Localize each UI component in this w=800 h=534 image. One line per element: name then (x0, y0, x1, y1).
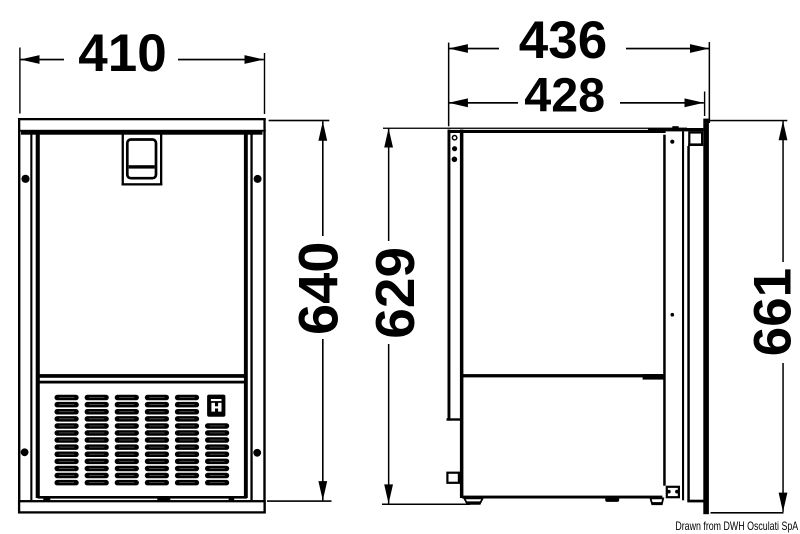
svg-text:428: 428 (524, 69, 605, 123)
svg-text:410: 410 (78, 24, 166, 83)
svg-text:629: 629 (364, 247, 426, 339)
svg-text:661: 661 (744, 268, 800, 356)
svg-text:436: 436 (519, 11, 607, 70)
svg-text:640: 640 (286, 242, 349, 335)
svg-text:Drawn from DWH Osculati SpA: Drawn from DWH Osculati SpA (675, 521, 798, 533)
